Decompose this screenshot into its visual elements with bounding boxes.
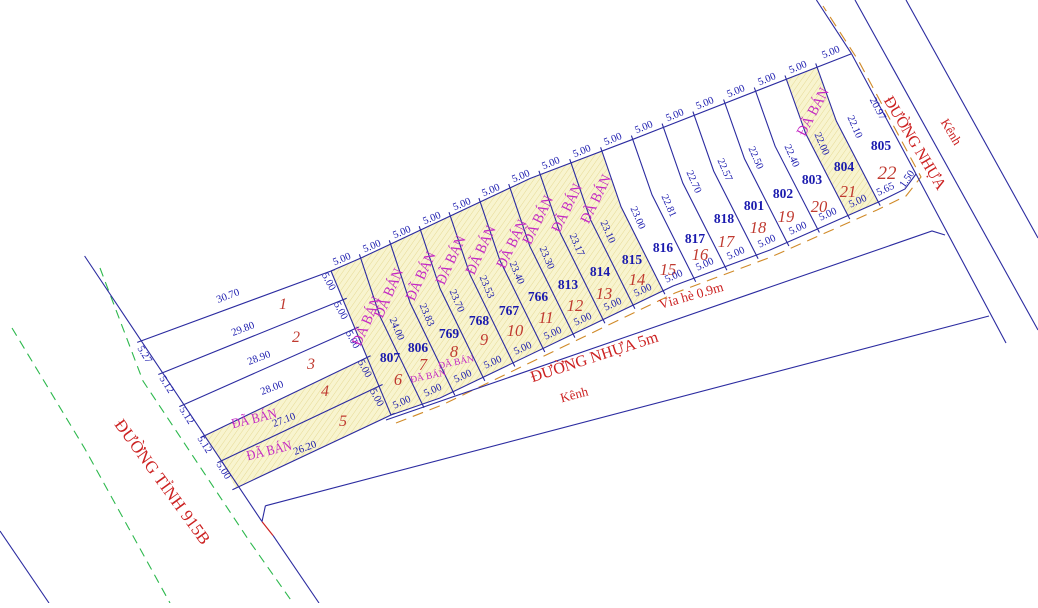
svg-text:815: 815: [622, 252, 643, 267]
svg-text:817: 817: [685, 231, 706, 246]
svg-text:766: 766: [528, 289, 549, 304]
svg-text:1: 1: [279, 296, 287, 313]
svg-text:801: 801: [744, 198, 765, 213]
svg-text:6: 6: [394, 370, 403, 389]
svg-text:807: 807: [380, 350, 401, 365]
svg-text:767: 767: [499, 303, 520, 318]
svg-text:17: 17: [718, 232, 735, 251]
svg-text:804: 804: [834, 159, 855, 174]
svg-text:4: 4: [321, 383, 329, 400]
svg-text:814: 814: [590, 264, 611, 279]
svg-text:805: 805: [871, 138, 892, 153]
svg-text:22: 22: [878, 163, 898, 184]
svg-text:769: 769: [439, 326, 460, 341]
svg-text:11: 11: [538, 308, 553, 327]
svg-text:818: 818: [714, 211, 735, 226]
svg-text:2: 2: [292, 329, 300, 346]
svg-text:802: 802: [773, 186, 794, 201]
svg-text:768: 768: [469, 313, 490, 328]
svg-text:806: 806: [408, 340, 429, 355]
svg-text:10: 10: [507, 321, 524, 340]
svg-text:18: 18: [750, 218, 767, 237]
svg-text:816: 816: [653, 240, 674, 255]
svg-text:813: 813: [558, 277, 579, 292]
svg-text:12: 12: [567, 296, 584, 315]
svg-text:5: 5: [339, 413, 347, 430]
svg-text:19: 19: [778, 207, 795, 226]
svg-text:7: 7: [419, 355, 428, 374]
svg-text:803: 803: [802, 172, 823, 187]
svg-text:9: 9: [480, 330, 488, 349]
svg-text:3: 3: [306, 356, 315, 373]
